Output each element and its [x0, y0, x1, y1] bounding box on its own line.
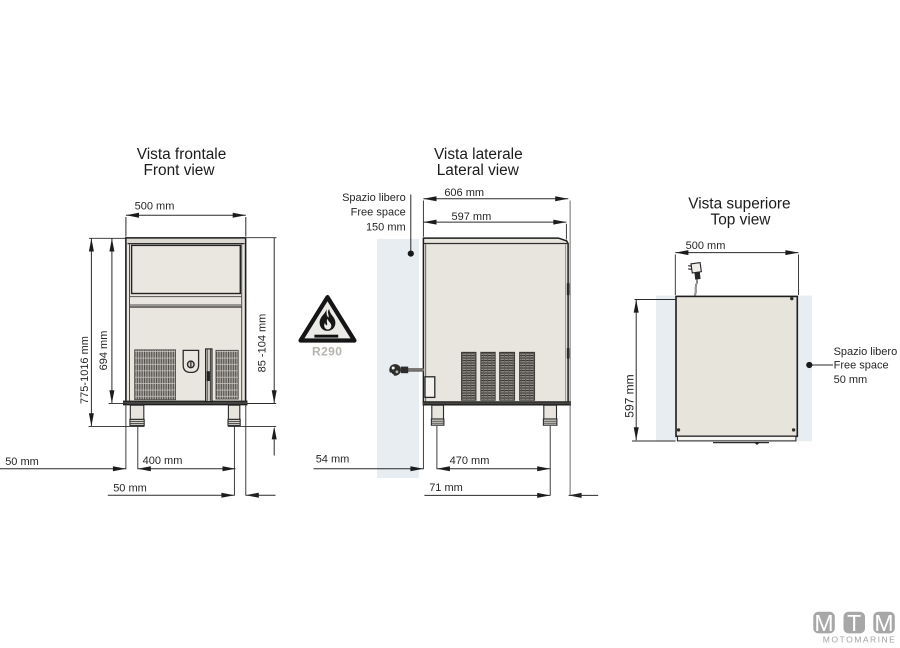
svg-text:470 mm: 470 mm [450, 455, 490, 467]
svg-text:Spazio libero: Spazio libero [342, 192, 406, 204]
svg-text:150 mm: 150 mm [366, 222, 406, 234]
svg-text:Lateral view: Lateral view [437, 162, 520, 179]
svg-text:Vista frontale: Vista frontale [137, 146, 227, 163]
svg-text:50 mm: 50 mm [113, 482, 147, 494]
svg-text:597 mm: 597 mm [452, 211, 492, 223]
svg-text:Spazio libero: Spazio libero [834, 346, 898, 358]
svg-text:606 mm: 606 mm [444, 187, 484, 199]
svg-text:597 mm: 597 mm [623, 374, 637, 417]
svg-text:Vista superiore: Vista superiore [688, 195, 790, 212]
svg-text:694 mm: 694 mm [98, 331, 110, 371]
svg-text:54 mm: 54 mm [316, 453, 350, 465]
svg-text:50 mm: 50 mm [5, 456, 39, 468]
svg-text:Vista laterale: Vista laterale [434, 146, 523, 163]
svg-text:Front view: Front view [144, 162, 216, 179]
svg-text:M: M [874, 610, 893, 636]
svg-text:775-1016 mm: 775-1016 mm [79, 336, 91, 404]
svg-text:R290: R290 [312, 344, 342, 358]
svg-text:Free space: Free space [834, 359, 889, 371]
svg-text:71 mm: 71 mm [429, 482, 463, 494]
svg-text:M: M [814, 610, 833, 636]
svg-text:Top view: Top view [711, 212, 772, 229]
svg-text:85 -104 mm: 85 -104 mm [257, 314, 269, 373]
svg-text:50 mm: 50 mm [834, 374, 868, 386]
svg-text:400 mm: 400 mm [143, 455, 183, 467]
svg-text:Free space: Free space [351, 207, 406, 219]
svg-text:T: T [847, 610, 861, 636]
svg-text:500 mm: 500 mm [686, 240, 726, 252]
svg-text:MOTOMARINE: MOTOMARINE [823, 635, 897, 645]
svg-text:500 mm: 500 mm [135, 200, 175, 212]
